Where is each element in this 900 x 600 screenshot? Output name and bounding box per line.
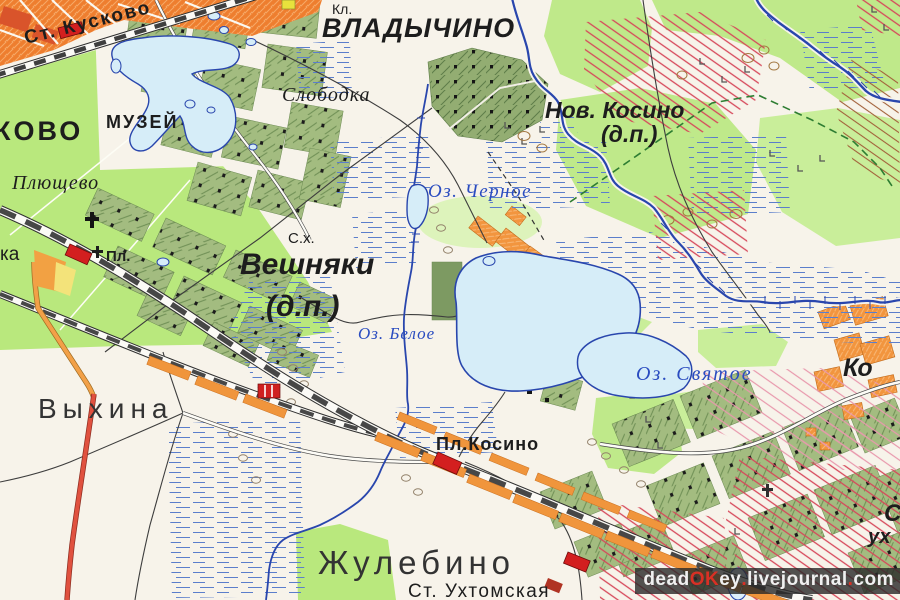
label-nov-kosino-dp: (д.п.) bbox=[601, 121, 657, 147]
label-oz-chernoye: Оз. Черное bbox=[428, 181, 532, 202]
watermark: deadOKey.livejournal.com bbox=[635, 568, 900, 594]
label-platform: Пл. bbox=[106, 248, 130, 265]
label-s-kh: С.х. bbox=[288, 230, 315, 247]
label-kovo: КОВО bbox=[0, 116, 83, 146]
map-canvas[interactable]: Ст. Кусково КОВО МУЗЕЙ Плющево Кл. ВЛАДЫ… bbox=[0, 0, 900, 600]
watermark-text-3: ey bbox=[719, 569, 741, 591]
label-ka: ка bbox=[0, 244, 20, 265]
label-oz-beloye: Оз. Белое bbox=[358, 324, 435, 343]
label-slobodka: Слободка bbox=[282, 84, 371, 106]
cemetery-icon bbox=[282, 0, 295, 9]
label-pl-kosino: Пл.Косино bbox=[436, 434, 539, 454]
label-ukh: ух bbox=[867, 526, 891, 548]
label-vladychino: ВЛАДЫЧИНО bbox=[322, 13, 515, 43]
label-veshnyaki-dp: (д.п.) bbox=[266, 290, 340, 323]
label-veshnyaki: Вешняки bbox=[240, 248, 374, 281]
landmark-box-icon bbox=[258, 384, 280, 398]
label-st-ukhtomskaya: Ст. Ухтомская bbox=[408, 581, 550, 600]
label-vykhina: Выхина bbox=[38, 393, 173, 424]
label-muzey: МУЗЕЙ bbox=[106, 111, 178, 132]
topographic-map[interactable]: Ст. Кусково КОВО МУЗЕЙ Плющево Кл. ВЛАДЫ… bbox=[0, 0, 900, 600]
watermark-text-1: dead bbox=[643, 569, 689, 591]
watermark-text-5: com bbox=[853, 569, 894, 591]
watermark-text-4: livejournal bbox=[747, 569, 848, 591]
label-ko: Ко bbox=[843, 354, 873, 382]
label-oz-svyatoye: Оз. Святое bbox=[636, 363, 753, 385]
label-zhulebino: Жулебино bbox=[318, 544, 515, 581]
label-plyushchevo: Плющево bbox=[11, 172, 99, 194]
watermark-text-2: OK bbox=[690, 569, 720, 591]
label-nov-kosino: Нов. Косино bbox=[545, 97, 684, 123]
label-s: С bbox=[884, 500, 900, 527]
